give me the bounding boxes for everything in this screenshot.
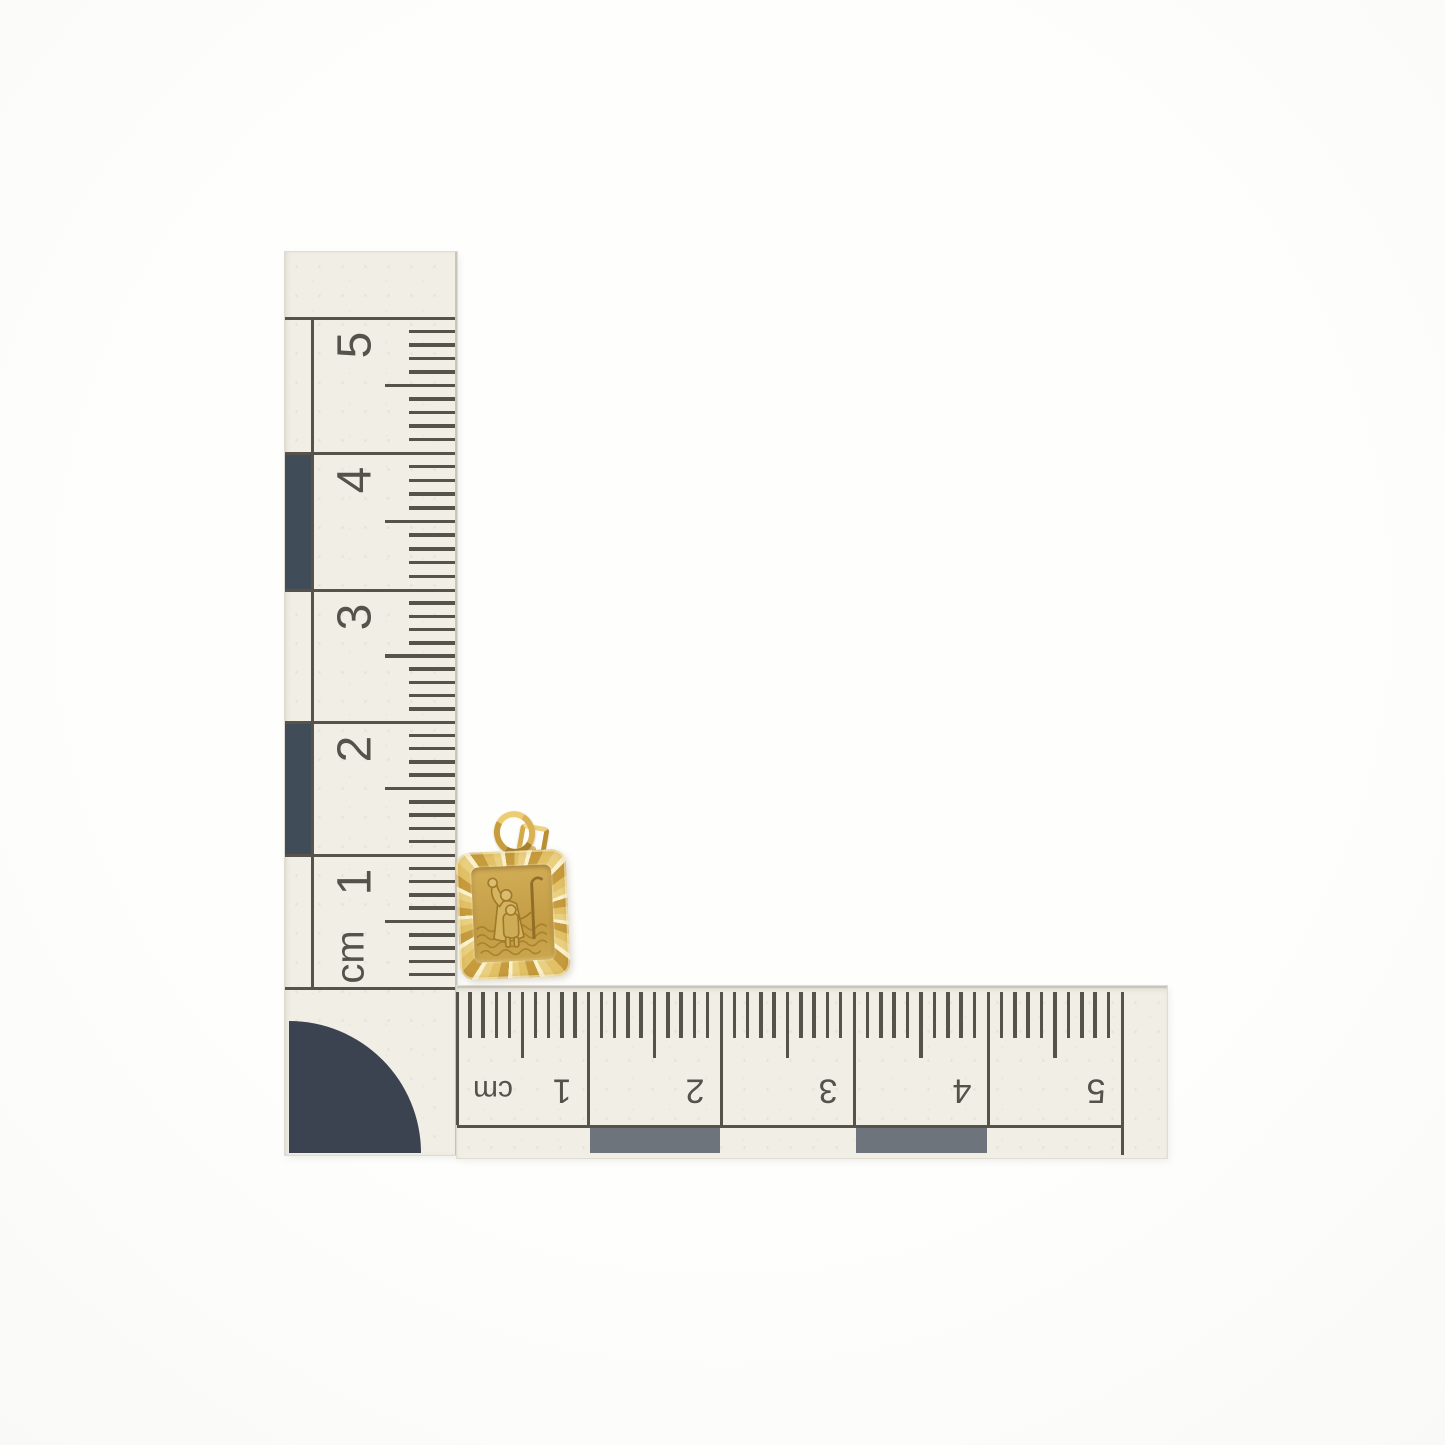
mm-tick: [933, 992, 937, 1038]
mm-tick: [409, 575, 455, 579]
mm-tick: [799, 992, 803, 1038]
strip-baseline: [457, 1125, 1122, 1128]
mm-tick: [786, 992, 790, 1058]
checker-dark-segment: [590, 1128, 720, 1153]
mm-tick: [409, 773, 455, 777]
mm-tick: [409, 973, 455, 977]
staff-icon: [531, 878, 545, 940]
cm-gridline: [987, 992, 990, 1125]
mm-tick: [409, 734, 455, 738]
mm-tick: [409, 397, 455, 401]
unit-label: cm: [473, 1073, 513, 1107]
mm-tick: [409, 357, 455, 361]
cm-number-label: 1: [553, 1071, 572, 1110]
mm-tick: [409, 601, 455, 605]
mm-tick: [409, 561, 455, 565]
photo-scene: 54321cm 12345cm: [0, 0, 1445, 1445]
mm-tick: [409, 893, 455, 897]
mm-tick: [839, 992, 843, 1038]
mm-tick: [879, 992, 883, 1038]
mm-tick: [1093, 992, 1097, 1038]
mm-tick: [385, 520, 455, 524]
cm-gridline: [720, 992, 723, 1125]
mm-tick: [409, 933, 455, 937]
vertical-ruler: 54321cm: [285, 252, 457, 1155]
mm-tick: [409, 827, 455, 831]
mm-tick: [409, 960, 455, 964]
unit-label: cm: [329, 930, 374, 983]
mm-tick: [409, 800, 455, 804]
mm-tick: [409, 343, 455, 347]
pendant-tag: [455, 849, 570, 981]
pendant-engraved-panel: [471, 864, 555, 962]
mm-tick: [973, 992, 977, 1038]
mm-tick: [385, 654, 455, 658]
mm-tick: [409, 760, 455, 764]
cm-number-label: 2: [686, 1071, 705, 1110]
checker-strip-line: [311, 318, 314, 988]
cm-gridline: [456, 992, 459, 1125]
checker-dark-segment: [285, 724, 311, 854]
mm-tick: [409, 547, 455, 551]
mm-tick: [409, 813, 455, 817]
cm-number-label: 4: [953, 1071, 972, 1110]
mm-tick: [1107, 992, 1111, 1038]
cm-number-label: 4: [328, 467, 383, 494]
mm-tick: [1040, 992, 1044, 1038]
mm-tick: [826, 992, 830, 1038]
mm-tick: [409, 506, 455, 510]
cm-gridline: [587, 992, 590, 1125]
mm-tick: [1000, 992, 1004, 1038]
mm-tick: [746, 992, 750, 1038]
mm-tick: [812, 992, 816, 1038]
cm-number-label: 5: [328, 332, 383, 359]
mm-tick: [409, 628, 455, 632]
mm-tick: [1067, 992, 1071, 1038]
mm-tick: [906, 992, 910, 1038]
mm-tick: [409, 880, 455, 884]
mm-tick: [409, 615, 455, 619]
mm-tick: [892, 992, 896, 1038]
mm-tick: [919, 992, 923, 1058]
mm-tick: [409, 330, 455, 334]
mm-tick: [613, 992, 617, 1038]
mm-tick: [409, 707, 455, 711]
mm-tick: [409, 479, 455, 483]
mm-tick: [639, 992, 643, 1038]
mm-tick: [1080, 992, 1084, 1038]
mm-tick: [693, 992, 697, 1038]
mm-tick: [409, 533, 455, 537]
mm-tick: [409, 946, 455, 950]
mm-tick: [409, 465, 455, 469]
mm-tick: [626, 992, 630, 1038]
mm-tick: [666, 992, 670, 1038]
mm-tick: [409, 867, 455, 871]
horizontal-ruler: 12345cm: [457, 986, 1167, 1158]
mm-tick: [409, 906, 455, 910]
checker-dark-segment: [285, 455, 311, 589]
mm-tick: [409, 492, 455, 496]
mm-tick: [1026, 992, 1030, 1038]
mm-tick: [866, 992, 870, 1038]
mm-tick: [959, 992, 963, 1038]
mm-tick: [1053, 992, 1057, 1058]
mm-tick: [1013, 992, 1017, 1038]
pendant: [450, 790, 610, 1005]
cm-gridline: [853, 992, 856, 1125]
mm-tick: [409, 641, 455, 645]
corner-quarter-circle: [289, 1021, 421, 1153]
cm-number-label: 2: [328, 736, 383, 763]
mm-tick: [385, 787, 455, 791]
mm-tick: [409, 424, 455, 428]
mm-tick: [679, 992, 683, 1038]
mm-tick: [409, 370, 455, 374]
cm-number-label: 1: [328, 869, 383, 896]
cm-gridline: [1121, 992, 1124, 1155]
mm-tick: [946, 992, 950, 1038]
mm-tick: [409, 747, 455, 751]
mm-tick: [409, 694, 455, 698]
mm-tick: [385, 384, 455, 388]
mm-tick: [772, 992, 776, 1038]
mm-tick: [409, 681, 455, 685]
cm-number-label: 3: [819, 1071, 838, 1110]
cm-number-label: 3: [328, 604, 383, 631]
mm-tick: [409, 438, 455, 442]
checker-dark-segment: [856, 1128, 987, 1153]
mm-tick: [706, 992, 710, 1038]
mm-tick: [653, 992, 657, 1058]
cm-number-label: 5: [1087, 1071, 1106, 1110]
mm-tick: [409, 411, 455, 415]
mm-tick: [385, 920, 455, 924]
mm-tick: [409, 840, 455, 844]
st-christopher-engraving: [471, 864, 555, 962]
mm-tick: [733, 992, 737, 1038]
mm-tick: [409, 667, 455, 671]
mm-tick: [759, 992, 763, 1038]
